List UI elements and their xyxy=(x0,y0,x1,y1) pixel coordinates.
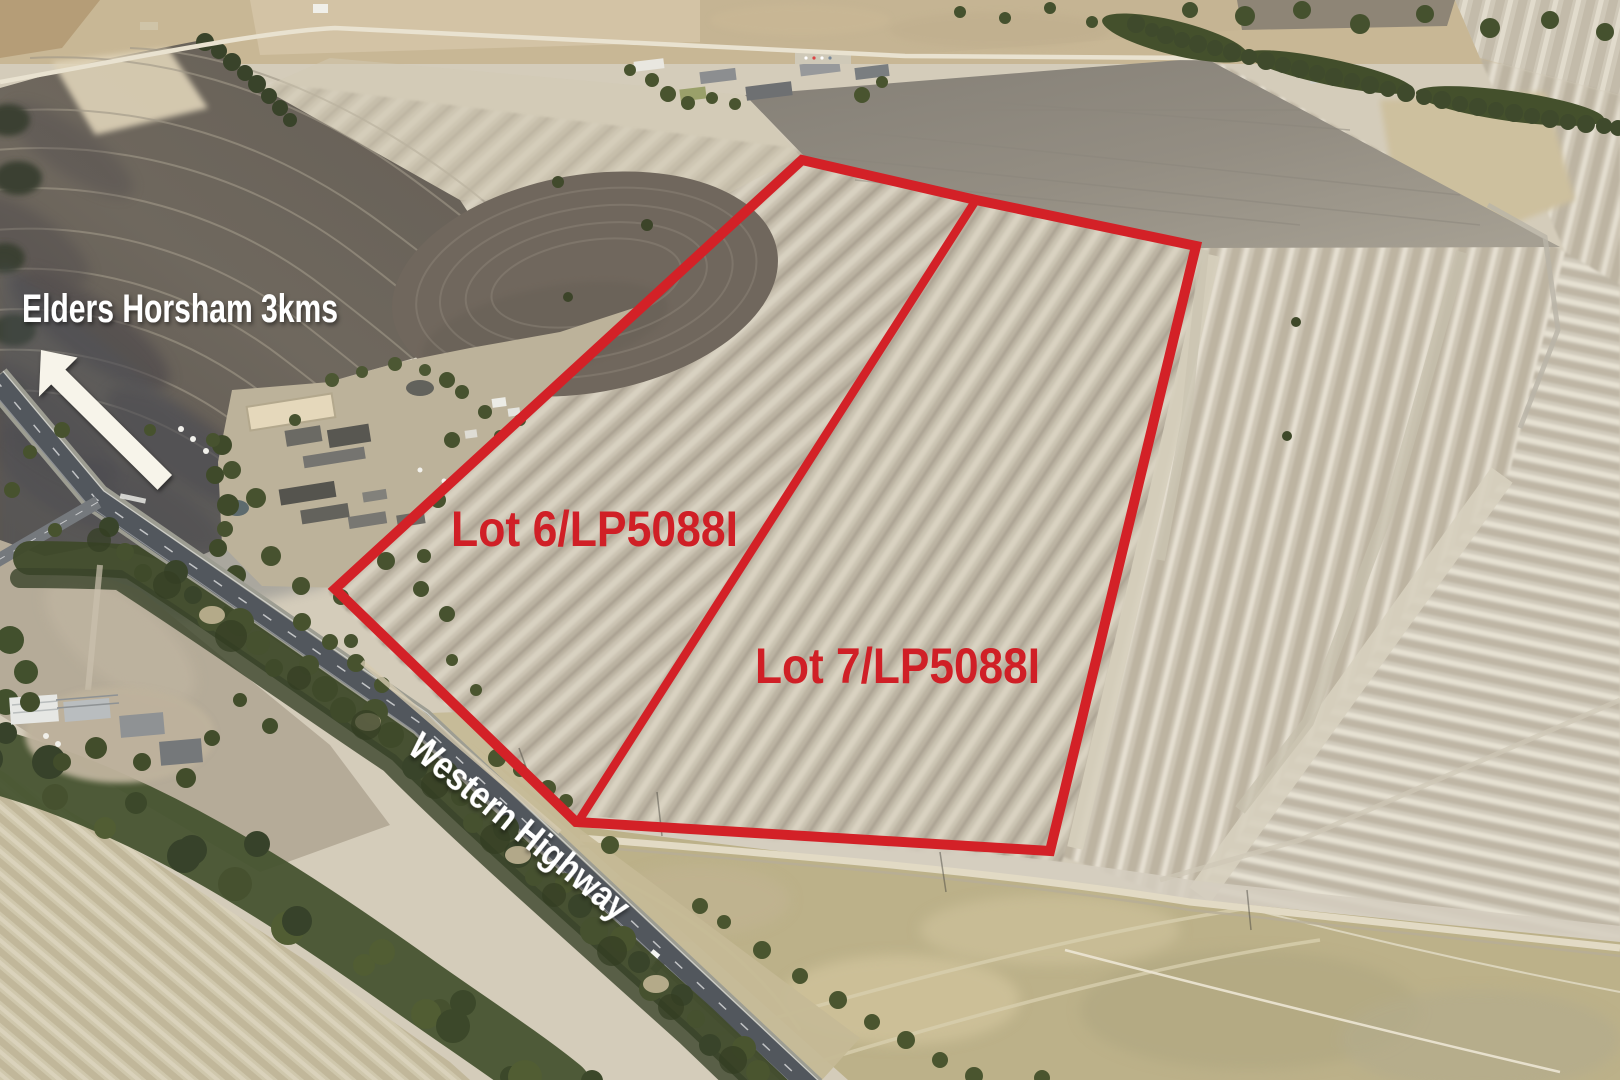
svg-text:Lot 7/LP5088I: Lot 7/LP5088I xyxy=(755,638,1040,694)
svg-text:Elders Horsham 3kms: Elders Horsham 3kms xyxy=(22,287,338,331)
svg-text:Lot 6/LP5088I: Lot 6/LP5088I xyxy=(451,501,738,557)
